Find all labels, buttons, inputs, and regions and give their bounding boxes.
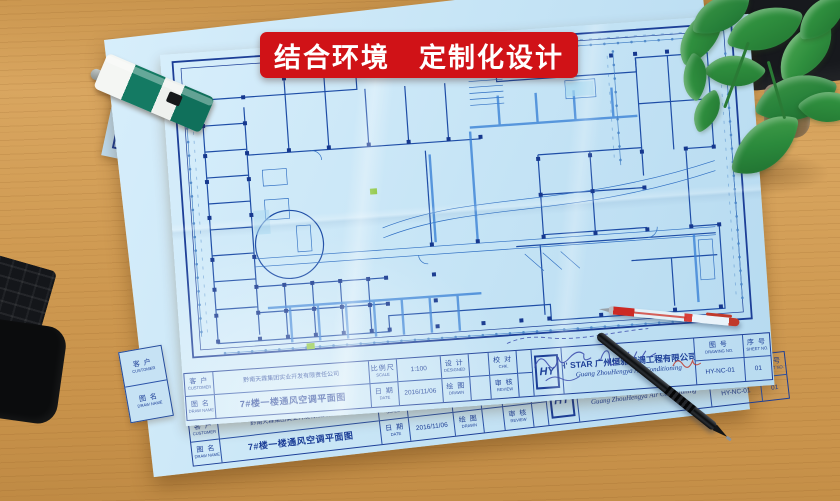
black-pen-point — [725, 435, 732, 441]
sheet-no-value: 01 — [754, 365, 762, 372]
tab-drawname-label-cell: 图 名 DRAW NAME — [125, 380, 172, 421]
plant-leaf — [798, 0, 840, 40]
customer-value: 黔南天霖集团实业开发有限责任公司 — [243, 371, 339, 385]
plan-cyan-area-2 — [253, 210, 271, 235]
plan-cyan-area — [565, 81, 594, 97]
plan-columns — [198, 47, 727, 344]
date-value: 2016/11/06 — [404, 388, 436, 397]
sheet-no-col: 序 号SHEET NO. 01 — [743, 333, 772, 381]
drawing-no-value: HY-NC-01 — [721, 387, 751, 397]
customer-label-en: CUSTOMER — [192, 430, 216, 437]
scale-date-value-col: 1:100 2016/11/06 — [397, 356, 444, 405]
date-label-en: DATE — [390, 432, 401, 437]
drawn-label-en: DRAWN — [461, 424, 477, 430]
green-highlight-2 — [370, 188, 377, 194]
drawname-label-cell: 图 名 DRAW NAME — [191, 440, 221, 466]
drawname-label-en: DRAW NAME — [188, 409, 214, 415]
title-block-label-col: 客 户CUSTOMER 图 名DRAW NAME — [184, 372, 216, 420]
plan-walls — [200, 51, 725, 344]
red-ink-note — [673, 359, 701, 368]
title-block-name-col: 黔南天霖集团实业开发有限责任公司 7#楼一楼通风空调平面图 — [213, 361, 372, 418]
sheet-no-label-en: SHEET NO. — [746, 346, 768, 352]
designed-drawn-label-col: 设 计DESIGNED 绘 图DRAWN — [440, 354, 471, 402]
drawname-value: 7#楼一楼通风空调平面图 — [240, 394, 346, 408]
customer-label-en: CUSTOMER — [188, 385, 212, 391]
plan-details — [243, 65, 723, 311]
drawname-label-en: DRAW NAME — [194, 453, 220, 460]
drawn-label-en: DRAWN — [449, 391, 465, 396]
date-value: 2016/11/06 — [416, 422, 449, 433]
green-highlight-1 — [306, 343, 314, 350]
review-label-en: REVIEW — [511, 418, 528, 424]
black-object — [0, 316, 68, 426]
marketing-banner: 结合环境 定制化设计 — [260, 32, 578, 78]
photo-stage: 客 户 CUSTOMER 图 名 DRAW NAME 黔南天霖集团实业开发有限责… — [0, 0, 840, 501]
scale-value: 1:100 — [410, 365, 427, 373]
date-label-en: DATE — [379, 396, 390, 401]
scale-date-label-col: 比例尺SCALE 日 期DATE — [369, 359, 400, 407]
designed-label-en: DESIGNED — [444, 367, 466, 373]
drawname-value: 7#楼一楼通风空调平面图 — [248, 432, 354, 451]
plan-dimensions — [183, 30, 744, 355]
scale-label-en: SCALE — [376, 373, 390, 378]
plan-ducts — [254, 83, 699, 344]
pothos-plant — [665, 0, 840, 205]
banner-text: 结合环境 定制化设计 — [274, 36, 564, 75]
